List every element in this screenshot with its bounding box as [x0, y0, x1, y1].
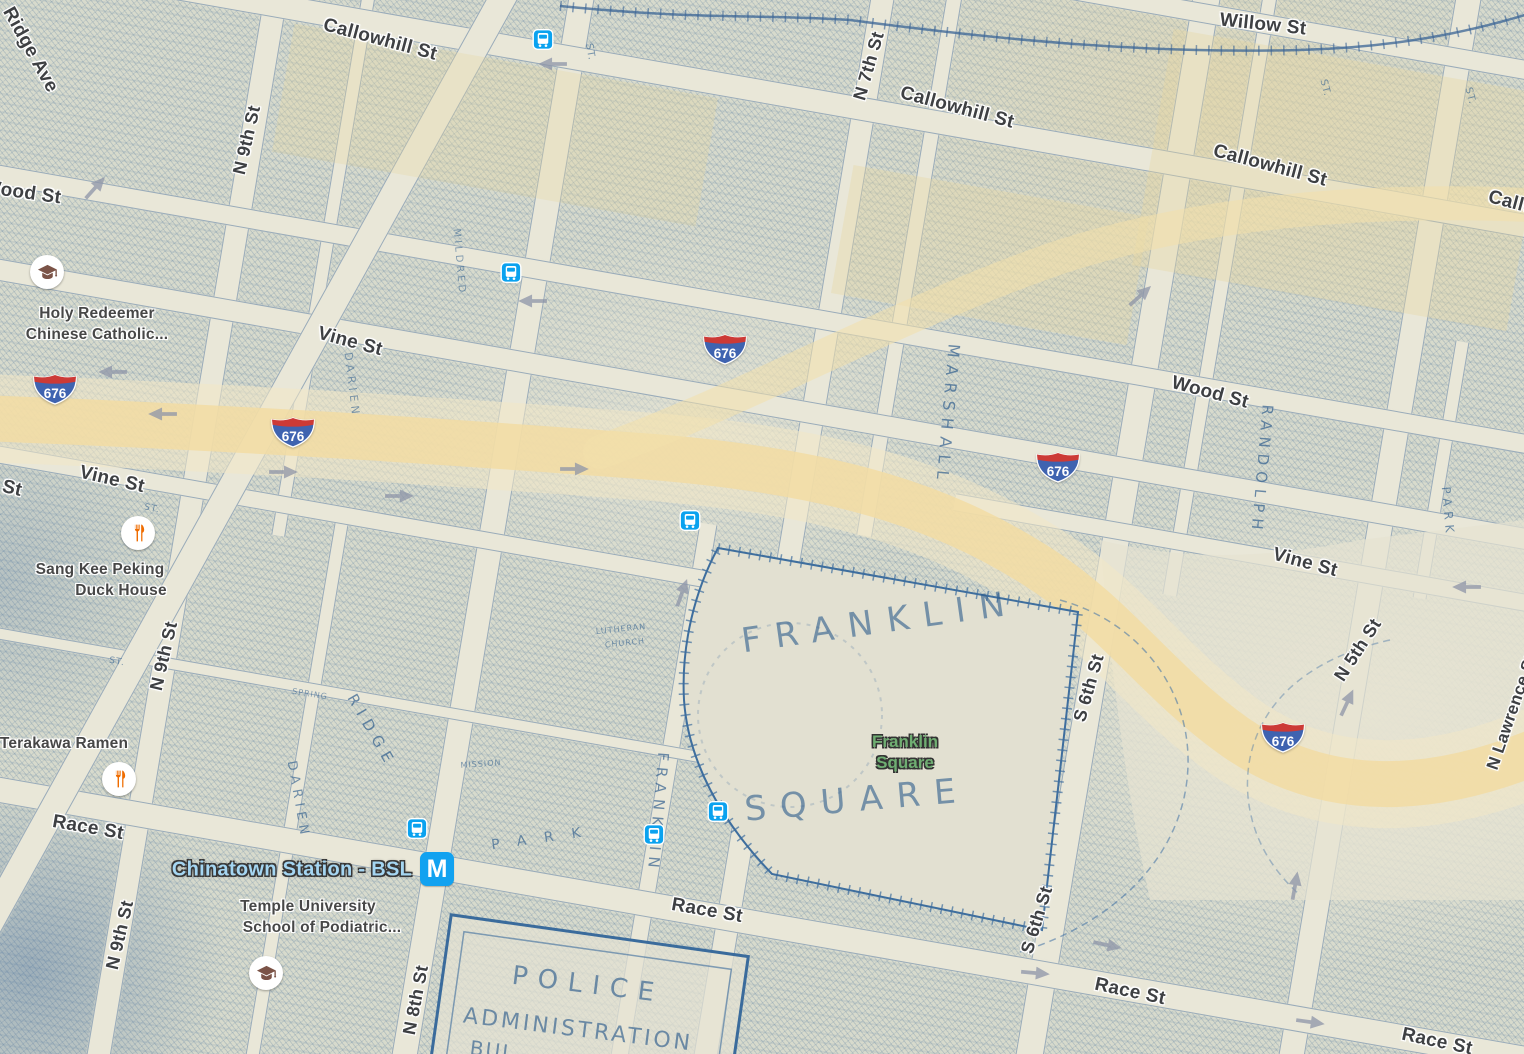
- svg-text:676: 676: [1272, 734, 1295, 749]
- interstate-shield-icon: 676: [1035, 452, 1081, 489]
- oneway-arrow-icon: [537, 58, 569, 71]
- oneway-arrow-icon: [97, 366, 129, 379]
- poi-label[interactable]: Chinese Catholic...: [26, 326, 168, 344]
- interstate-shield-icon: 676: [1260, 722, 1306, 759]
- svg-text:676: 676: [714, 346, 737, 361]
- restaurant-icon[interactable]: [102, 762, 136, 796]
- bus-stop-icon[interactable]: [533, 29, 554, 55]
- interstate-shield-icon: 676: [270, 417, 316, 454]
- bus-stop-icon[interactable]: [644, 824, 665, 850]
- oneway-arrow-icon: [147, 408, 179, 421]
- poi-label[interactable]: Terakawa Ramen: [0, 735, 128, 753]
- oneway-arrow-icon: [383, 490, 415, 503]
- svg-text:676: 676: [1047, 464, 1070, 479]
- station-label[interactable]: Chinatown Station - BSL: [172, 859, 412, 882]
- metro-station-icon[interactable]: M: [420, 852, 454, 886]
- tinted-district: [1132, 29, 1524, 331]
- oneway-arrow-icon: [1018, 965, 1051, 981]
- school-icon[interactable]: [30, 255, 64, 289]
- interstate-shield-icon: 676: [702, 334, 748, 371]
- bus-stop-icon[interactable]: [407, 818, 428, 844]
- tinted-district: [272, 24, 718, 227]
- interstate-shield-icon: 676: [32, 374, 78, 411]
- school-icon[interactable]: [249, 956, 283, 990]
- park-label-line: Franklin: [872, 732, 938, 752]
- svg-text:676: 676: [282, 429, 305, 444]
- oneway-arrow-icon: [1451, 581, 1483, 594]
- poi-label[interactable]: Sang Kee Peking: [36, 561, 165, 579]
- poi-label[interactable]: Duck House: [75, 582, 167, 600]
- bus-stop-icon[interactable]: [680, 510, 701, 536]
- bus-stop-icon[interactable]: [501, 262, 522, 288]
- restaurant-icon[interactable]: [121, 516, 155, 550]
- park-label-line: Square: [876, 753, 934, 773]
- poi-label[interactable]: School of Podiatric...: [243, 919, 402, 937]
- poi-label[interactable]: Holy Redeemer: [39, 305, 154, 323]
- oneway-arrow-icon: [517, 295, 549, 308]
- oneway-arrow-icon: [267, 466, 299, 479]
- oneway-arrow-icon: [558, 463, 590, 476]
- poi-label[interactable]: Temple University: [240, 898, 376, 916]
- railroad-line: [560, 6, 1524, 51]
- map-viewport[interactable]: FRANKLINSQUAREPOLICEADMINISTRATIONBUIMAR…: [0, 0, 1524, 1054]
- svg-text:676: 676: [44, 386, 67, 401]
- bus-stop-icon[interactable]: [708, 801, 729, 827]
